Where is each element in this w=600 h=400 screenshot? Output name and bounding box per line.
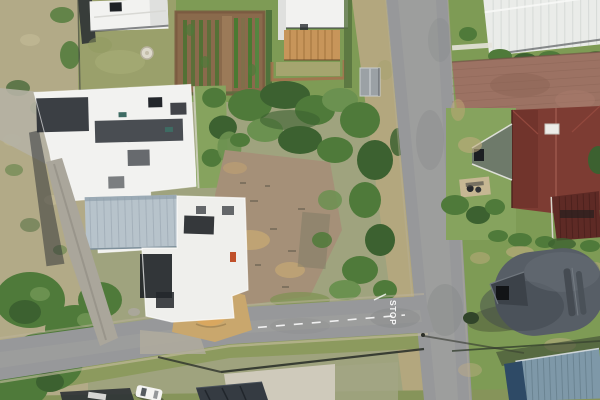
braai-pad (459, 176, 491, 197)
utility-pole (421, 333, 425, 337)
garden-shed (360, 68, 380, 96)
stop-road-marking: STOP (388, 300, 398, 325)
aerial-scene: STOP (0, 0, 600, 400)
aerial-photo: STOP (0, 0, 600, 400)
hedge (344, 0, 352, 88)
chimney (545, 124, 559, 134)
white-flat-roof (286, 0, 348, 28)
vegetable-garden (176, 12, 264, 94)
white-gable-house (90, 0, 169, 31)
orange-equipment (230, 252, 236, 262)
skylight (110, 2, 122, 11)
metal-roof (85, 195, 178, 249)
dormer-window (496, 286, 509, 300)
